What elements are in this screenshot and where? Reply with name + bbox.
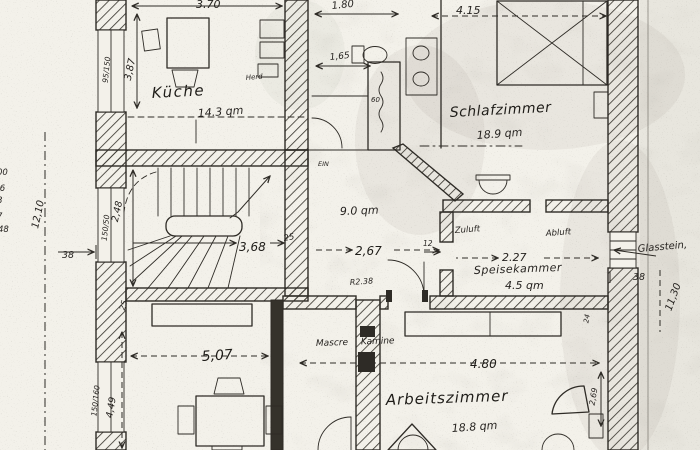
wall-kueche-right [285,0,308,150]
dim-arbeitszimmer-width: 4.80 [470,357,497,371]
wall-under-kueche [96,150,308,166]
flue [360,326,375,337]
floor-plan-sheet: 3.70 1.80 4.15 3,87 95/150 1,65 Herd Küc… [0,0,700,450]
dim-wand-treppe: 25 [283,232,295,244]
label-tuer: R2.38 [350,276,374,287]
room-label-kueche: Küche [151,81,205,102]
dim-wohnraum-width: 5,07 [201,347,233,365]
dim-wand-rechts: 38 [633,272,645,283]
room-area-speisekammer: 4.5 qm [505,279,544,292]
margin-mark: 00 [0,168,8,178]
wall-wohnraum-right [271,300,283,450]
flue [358,352,375,372]
label-ein: EIN [318,160,329,168]
dim-bad-inner: 1,65 [329,51,350,63]
dim-schlafzimmer-width: 4.15 [456,4,481,17]
window-glasstein [610,232,636,268]
wall-flur-bottom [283,296,356,309]
wall-under-treppe [126,288,308,301]
dim-wand-stub: 12 [423,239,433,248]
dim-wand-klein: 24 [582,314,591,324]
room-area-flur: 9.0 qm [340,204,379,218]
dim-schacht: 60 [371,96,380,104]
label-zuluft: Zuluft [454,224,482,236]
right-wall [608,0,638,232]
margin-mark: ,6 [0,184,6,194]
wall-treppe-right [285,150,308,296]
margin-mark: 48 [0,225,9,235]
dim-kueche-width: 3.70 [196,0,221,11]
label-abluft: Abluft [545,227,573,239]
left-wall [96,0,126,30]
wall-speisekammer-bottom [430,296,608,309]
label-herd: Herd [245,73,263,82]
chimney [356,300,380,450]
wall-speisekammer-left [440,212,453,242]
dim-flur-width: 2,67 [355,244,382,258]
dim-wand-links: 38 [62,250,74,261]
dim-treppe-width: 3,68 [239,240,266,254]
wall-schlafzimmer-bottom [443,200,530,212]
